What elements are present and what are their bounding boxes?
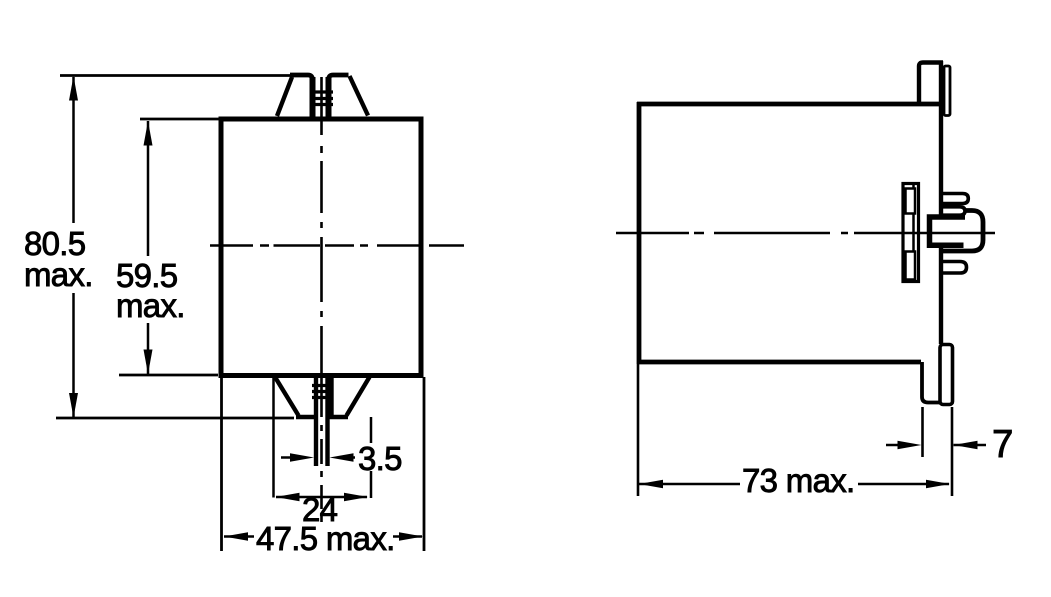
svg-text:47.5 max.: 47.5 max. [256, 520, 395, 557]
svg-text:max.: max. [116, 287, 185, 324]
svg-text:max.: max. [24, 256, 93, 293]
svg-text:3.5: 3.5 [358, 440, 402, 477]
svg-text:73 max.: 73 max. [742, 462, 855, 499]
svg-text:7: 7 [992, 423, 1013, 466]
